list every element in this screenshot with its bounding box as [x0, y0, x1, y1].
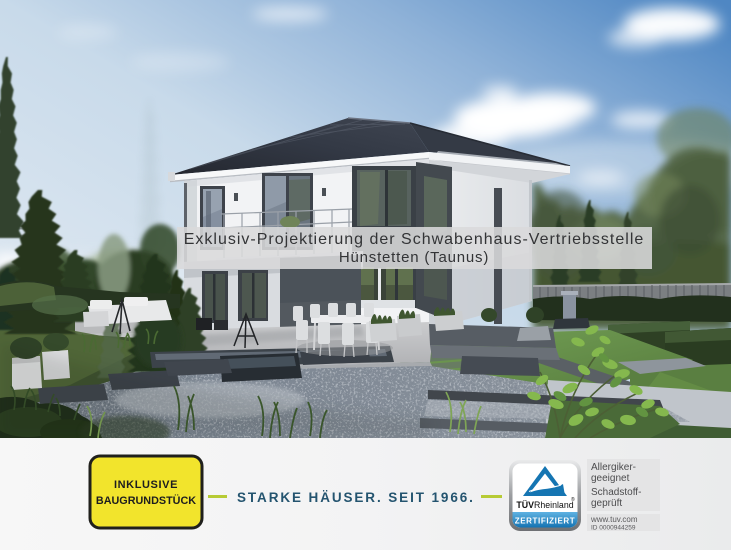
svg-text:Schadstoff-: Schadstoff-	[591, 487, 641, 498]
svg-text:Hünstetten (Taunus): Hünstetten (Taunus)	[339, 249, 489, 266]
svg-text:ZERTIFIZIERT: ZERTIFIZIERT	[515, 517, 576, 526]
svg-text:Allergiker-: Allergiker-	[591, 462, 636, 473]
svg-text:ID 0000944259: ID 0000944259	[591, 525, 636, 532]
svg-text:BAUGRUNDSTÜCK: BAUGRUNDSTÜCK	[96, 494, 196, 507]
svg-text:Exklusiv-Projektierung der Sch: Exklusiv-Projektierung der Schwabenhaus-…	[184, 231, 645, 248]
svg-text:TÜVRheinland: TÜVRheinland	[516, 500, 573, 510]
svg-text:STARKE HÄUSER. SEIT 1966.: STARKE HÄUSER. SEIT 1966.	[237, 490, 475, 505]
svg-text:INKLUSIVE: INKLUSIVE	[114, 479, 178, 491]
svg-text:www.tuv.com: www.tuv.com	[590, 515, 638, 524]
svg-text:geeignet: geeignet	[591, 473, 630, 484]
svg-text:geprüft: geprüft	[591, 498, 622, 509]
svg-text:®: ®	[571, 496, 575, 503]
